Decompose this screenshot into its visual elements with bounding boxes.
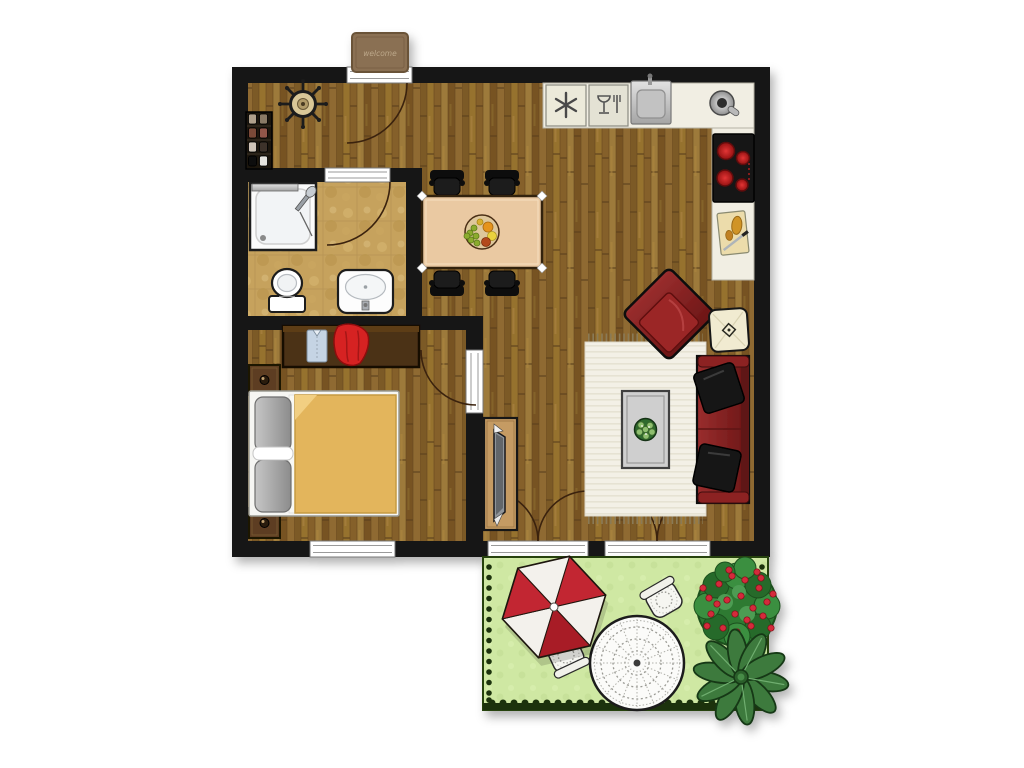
bedroom-window xyxy=(310,541,395,557)
throw-pillow xyxy=(692,443,742,493)
coffee-table xyxy=(622,391,669,468)
tv-stand xyxy=(484,418,517,530)
freezer xyxy=(546,85,586,126)
potted-plant xyxy=(635,419,657,441)
fruit-bowl xyxy=(464,215,499,249)
doormat: welcome xyxy=(352,33,408,72)
washbasin xyxy=(338,270,393,313)
doormat-text: welcome xyxy=(363,49,397,58)
dining-table xyxy=(417,191,547,273)
pillow xyxy=(255,397,291,451)
shoe-rack xyxy=(246,112,272,169)
hanging-shirt xyxy=(307,330,327,362)
terrace xyxy=(483,543,790,726)
blanket xyxy=(295,395,396,513)
kitchen-sink xyxy=(631,74,671,125)
pillow xyxy=(255,460,291,512)
cutting-board xyxy=(717,211,750,256)
cooktop xyxy=(713,134,754,202)
sofa xyxy=(692,356,749,503)
wardrobe xyxy=(283,323,419,367)
toilet xyxy=(269,269,305,312)
floor-plan: welcome xyxy=(0,0,1024,768)
shower xyxy=(250,183,318,250)
double-bed xyxy=(249,391,399,516)
floor-plan-canvas: welcome xyxy=(0,0,1024,768)
garden-table xyxy=(590,616,684,710)
dishwasher xyxy=(589,85,628,126)
apartment: welcome xyxy=(232,33,770,557)
floor-cushion xyxy=(709,308,750,353)
rosette-plant xyxy=(692,628,790,726)
